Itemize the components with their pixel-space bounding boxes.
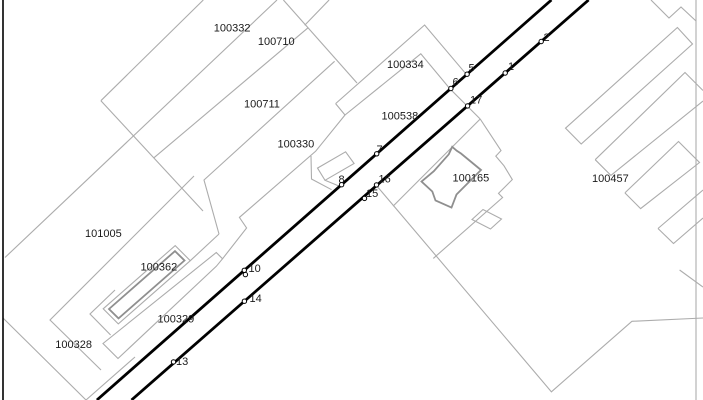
svg-text:13: 13 (176, 356, 188, 368)
svg-text:10: 10 (249, 263, 261, 275)
svg-text:15: 15 (366, 188, 378, 200)
svg-text:100538: 100538 (382, 111, 419, 123)
svg-text:8: 8 (339, 174, 345, 186)
svg-text:100165: 100165 (453, 173, 490, 185)
svg-text:1: 1 (508, 61, 514, 73)
svg-text:100328: 100328 (55, 339, 92, 351)
svg-text:14: 14 (250, 293, 262, 305)
svg-text:6: 6 (453, 77, 459, 89)
svg-text:5: 5 (469, 63, 475, 75)
svg-text:100362: 100362 (141, 262, 178, 274)
svg-text:100710: 100710 (258, 36, 295, 48)
svg-text:100329: 100329 (158, 314, 195, 326)
svg-text:101005: 101005 (85, 228, 122, 240)
svg-text:100330: 100330 (278, 139, 315, 151)
svg-text:100332: 100332 (214, 23, 251, 35)
svg-text:7: 7 (377, 144, 383, 156)
svg-text:16: 16 (379, 174, 391, 186)
svg-text:100457: 100457 (592, 173, 629, 185)
svg-text:100334: 100334 (387, 59, 424, 71)
svg-text:100711: 100711 (244, 99, 280, 111)
svg-text:2: 2 (544, 32, 550, 44)
svg-text:17: 17 (470, 95, 482, 107)
